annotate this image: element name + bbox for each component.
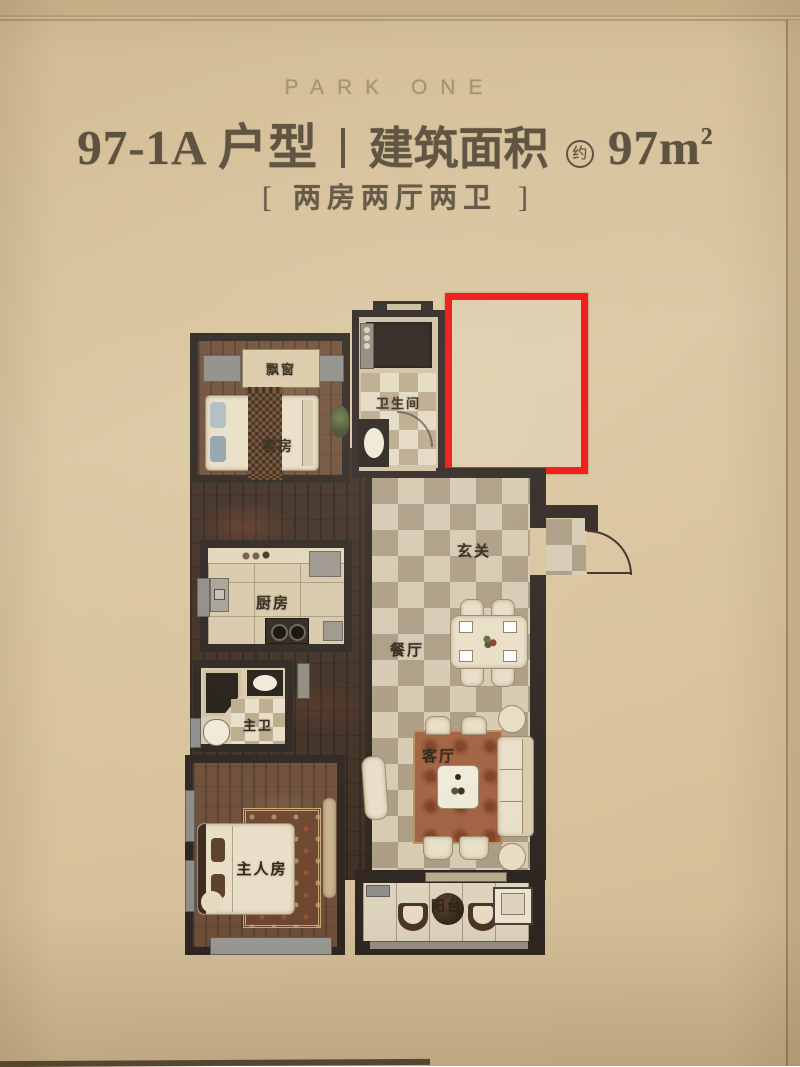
title-unit-type: 97-1A 户型 xyxy=(77,120,318,175)
guest-room-window-right xyxy=(317,355,344,382)
floor-plan: 飘窗 客房 卫生间 xyxy=(185,293,635,965)
guest-bed-pillow xyxy=(210,402,226,428)
room-label-dining: 餐厅 xyxy=(375,639,439,660)
table-decor-leaves xyxy=(450,786,466,796)
toilet-icon xyxy=(364,428,384,458)
sofa-cushion-line xyxy=(500,801,522,802)
room-label-kitchen: 厨房 xyxy=(240,592,306,613)
sink-oval-icon xyxy=(253,675,277,691)
entry-wall-upper xyxy=(530,470,546,528)
guest-bed-pillow xyxy=(210,436,226,462)
sink-basin xyxy=(214,589,225,600)
master-bedroom-window xyxy=(185,790,195,842)
room-label-guest-room: 客房 xyxy=(245,436,311,456)
entry-door-jamb xyxy=(585,505,598,531)
title-area-value: 97m xyxy=(608,120,701,175)
entry-recess-floor xyxy=(546,519,586,575)
side-table-round xyxy=(498,843,526,871)
stove-burner xyxy=(271,624,288,641)
place-setting xyxy=(503,650,517,662)
subtitle-bracket-right: ] xyxy=(518,181,528,214)
guest-bed xyxy=(205,395,319,471)
bathroom-toilet-nook xyxy=(359,419,389,467)
page-top-edge-line xyxy=(0,15,800,17)
place-setting xyxy=(503,621,517,633)
plumbing-shaft xyxy=(297,663,310,699)
living-chair xyxy=(423,836,453,860)
washer-knob xyxy=(364,343,370,349)
kitchen-sink-icon xyxy=(240,550,270,561)
room-label-living: 客厅 xyxy=(407,745,471,766)
title-area-superscript: 2 xyxy=(701,124,713,150)
page-subtitle: [ 两房两厅两卫 ] xyxy=(0,176,790,216)
chaise-bench xyxy=(361,755,389,821)
balcony-drain-icon xyxy=(366,885,390,897)
master-bedroom-window xyxy=(185,860,195,912)
room-label-hall: 玄关 xyxy=(437,540,511,561)
sofa-backrest xyxy=(522,739,532,834)
coffee-table xyxy=(437,765,479,809)
page-title: 97-1A 户型 建筑面积 约 97m2 xyxy=(0,108,790,179)
kitchen-window xyxy=(197,578,210,617)
title-area-label: 建筑面积 xyxy=(368,124,548,174)
guest-room-window-left xyxy=(203,355,241,382)
plant-icon xyxy=(331,405,349,437)
washer-knob xyxy=(364,327,370,333)
side-table-round xyxy=(498,705,526,733)
balcony-railing xyxy=(370,941,528,949)
guest-bed-throw xyxy=(248,390,282,476)
living-chair xyxy=(425,716,451,735)
sofa xyxy=(497,736,534,837)
entry-door-leaf xyxy=(587,572,632,574)
brochure-photo: PARK ONE 97-1A 户型 建筑面积 约 97m2 [ 两房两厅两卫 ]… xyxy=(0,0,800,1066)
highlight-annotation-box xyxy=(445,293,588,474)
bathroom-vanity-counter xyxy=(366,322,432,368)
fridge-icon xyxy=(309,551,341,577)
place-setting xyxy=(459,650,473,662)
room-label-master-bath: 主卫 xyxy=(231,715,285,734)
washing-machine-icon xyxy=(360,323,374,369)
living-chair xyxy=(461,716,487,735)
subtitle-bracket-left: [ xyxy=(262,181,272,214)
table-centerpiece-flowers xyxy=(479,632,499,650)
toilet-icon xyxy=(203,719,230,746)
page-top-edge-shadow xyxy=(0,19,800,21)
bay-window: 飘窗 xyxy=(242,349,320,388)
living-chair xyxy=(459,836,489,860)
room-label-balcony: 阳台 xyxy=(415,896,479,916)
stove-icon xyxy=(265,618,309,644)
room-label-bathroom: 卫生间 xyxy=(361,393,436,412)
dining-table xyxy=(450,615,528,669)
bedroom-stool xyxy=(201,891,223,913)
curtain-wardrobe xyxy=(323,798,336,898)
kitchen-appliance xyxy=(323,621,343,641)
title-approx-circle: 约 xyxy=(566,140,594,168)
master-bedroom-bay-window xyxy=(210,937,332,955)
brand-logo-text: PARK ONE xyxy=(0,76,780,100)
sofa-cushion-line xyxy=(500,769,522,770)
table-decor xyxy=(455,774,461,780)
page-top-margin xyxy=(0,0,800,15)
equipment-inner xyxy=(501,893,525,915)
room-label-master-bedroom: 主人房 xyxy=(223,858,301,879)
master-bath-window xyxy=(190,718,201,748)
title-divider xyxy=(341,128,345,168)
stove-burner xyxy=(289,624,306,641)
equipment-platform xyxy=(493,887,533,925)
subtitle-text: 两房两厅两卫 xyxy=(293,183,497,214)
place-setting xyxy=(459,621,473,633)
balcony-sliding-door xyxy=(425,872,507,882)
room-label-bay-window: 飘窗 xyxy=(243,359,319,378)
washer-knob xyxy=(364,335,370,341)
entry-door-arc xyxy=(587,530,632,575)
master-bath-vanity xyxy=(247,670,283,696)
guest-bed-foot xyxy=(302,400,313,466)
kitchen-side-sink xyxy=(210,578,229,612)
